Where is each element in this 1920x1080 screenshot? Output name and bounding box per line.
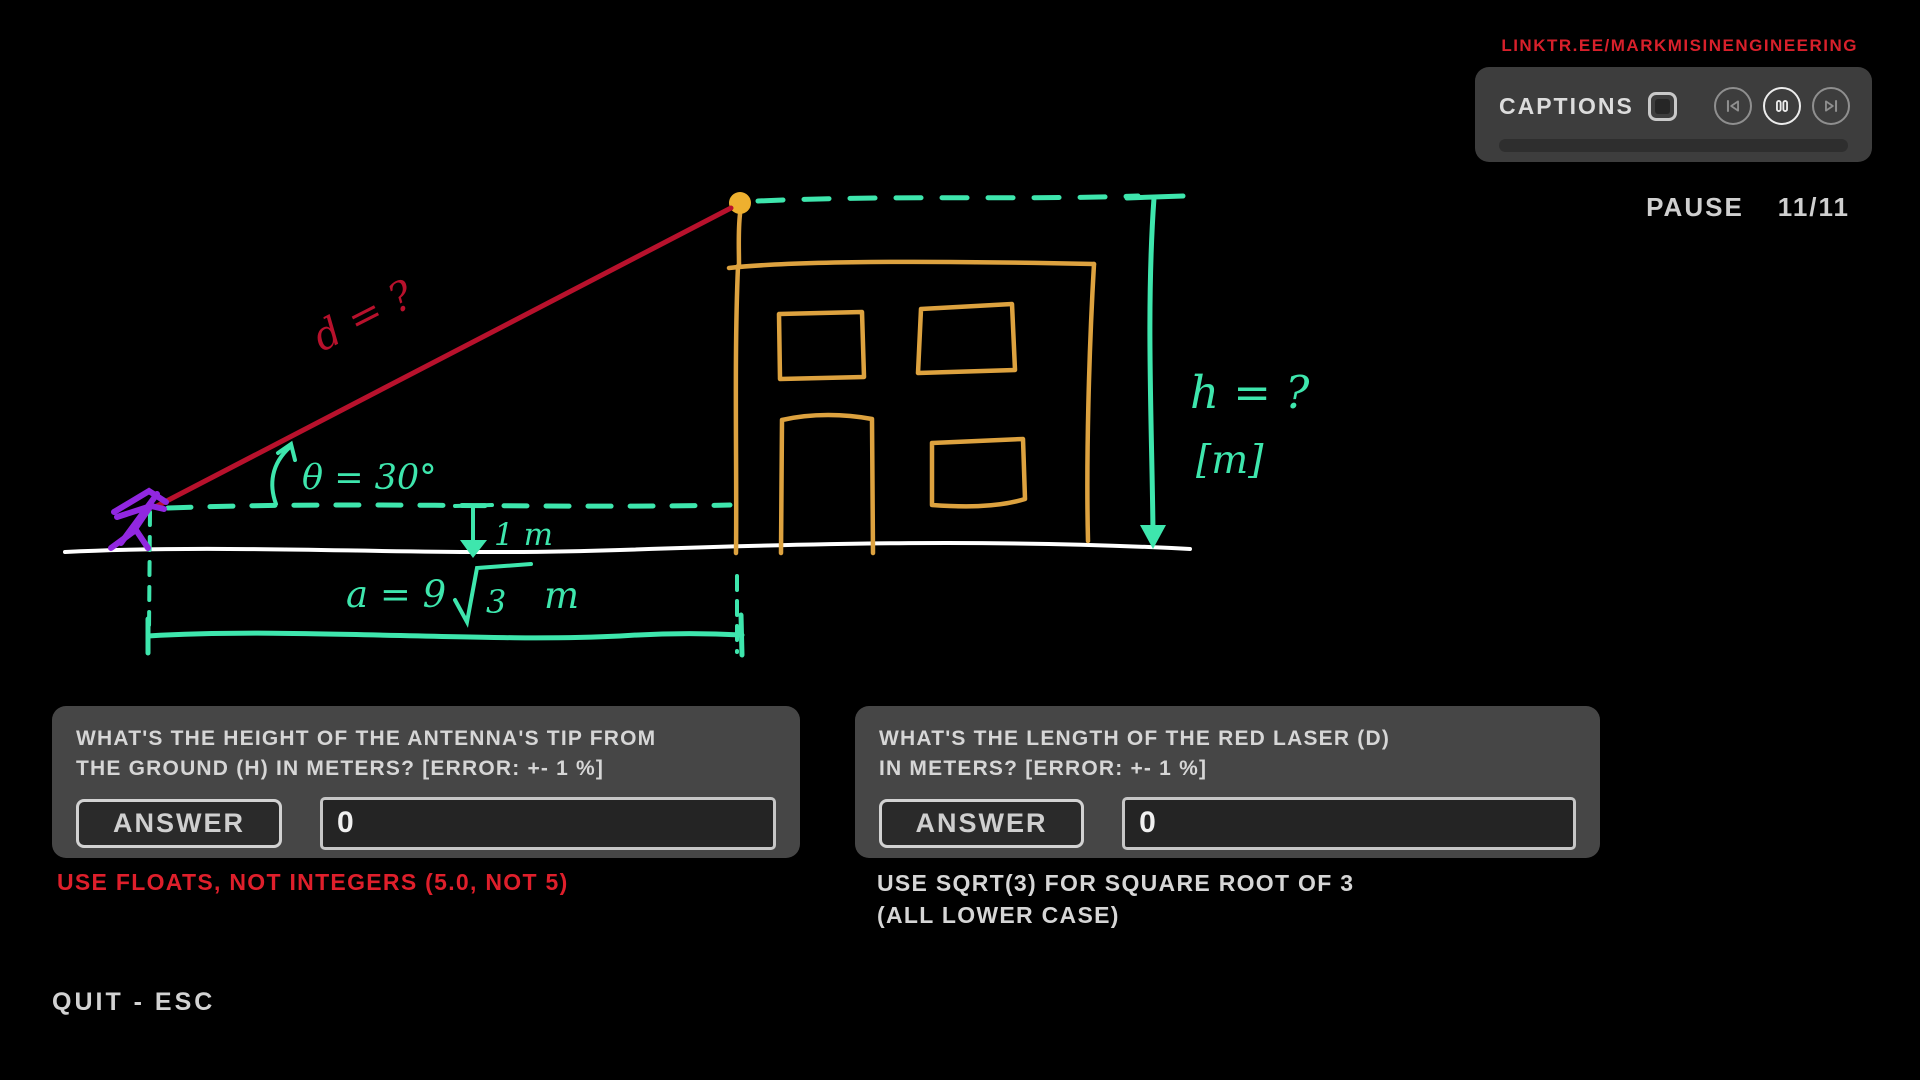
base-label-prefix: a = 9 xyxy=(346,573,446,616)
pause-icon xyxy=(1771,95,1793,117)
skip-back-icon xyxy=(1722,95,1744,117)
pause-status-label: PAUSE xyxy=(1646,192,1744,223)
base-measure-line xyxy=(148,633,742,638)
base-measure-right-end xyxy=(741,615,742,655)
building-right-wall xyxy=(1087,264,1094,541)
door xyxy=(781,415,873,553)
answer-button-laser[interactable]: ANSWER xyxy=(879,799,1084,848)
laser-line xyxy=(157,208,731,506)
floats-hint: USE FLOATS, NOT INTEGERS (5.0, NOT 5) xyxy=(57,869,569,896)
angle-label: θ = 30° xyxy=(302,458,437,498)
base-label-radicand: 3 xyxy=(486,583,506,621)
sqrt-hint-line1: USE SQRT(3) FOR SQUARE ROOT OF 3 xyxy=(877,867,1354,899)
building-roof xyxy=(729,262,1094,268)
quit-hint: QUIT - ESC xyxy=(52,988,215,1017)
question-laser-line2: IN METERS? [ERROR: +- 1 %] xyxy=(879,754,1576,784)
height-measure-line xyxy=(1150,198,1154,532)
offset-measure-arrowhead xyxy=(460,540,487,558)
captions-player-panel: CAPTIONS xyxy=(1475,67,1872,162)
captions-checkbox[interactable] xyxy=(1648,92,1677,121)
base-label-unit: m xyxy=(544,574,579,617)
question-laser-line1: WHAT'S THE LENGTH OF THE RED LASER (D) xyxy=(879,724,1576,754)
antenna-tip-dot xyxy=(729,192,751,214)
angle-arc xyxy=(272,447,290,504)
skip-forward-button[interactable] xyxy=(1812,87,1850,125)
question-height-line1: WHAT'S THE HEIGHT OF THE ANTENNA'S TIP F… xyxy=(76,724,776,754)
figure-leg-right xyxy=(136,530,148,548)
caption-progress-bar[interactable] xyxy=(1499,139,1848,152)
answer-input-height[interactable] xyxy=(320,797,776,850)
skip-back-button[interactable] xyxy=(1714,87,1752,125)
captions-checkbox-fill xyxy=(1655,99,1670,114)
eye-level-dashed-line xyxy=(168,505,730,508)
sqrt-hint-line2: (ALL LOWER CASE) xyxy=(877,899,1354,931)
captions-label: CAPTIONS xyxy=(1499,93,1634,120)
offset-label: 1 m xyxy=(494,517,553,553)
caption-index-counter: 11/11 xyxy=(1778,192,1850,223)
game-status: PAUSE 11/11 xyxy=(1646,192,1850,223)
building-left-wall xyxy=(736,266,738,553)
figure-base-dashed-tick xyxy=(149,512,150,630)
height-label: h = ? xyxy=(1190,366,1310,419)
roof-level-dashed-line xyxy=(758,196,1138,201)
ground-line xyxy=(65,543,1190,552)
skip-forward-icon xyxy=(1820,95,1842,117)
question-panel-laser: WHAT'S THE LENGTH OF THE RED LASER (D) I… xyxy=(855,706,1600,858)
window-lower-right xyxy=(932,439,1025,506)
sqrt-hint: USE SQRT(3) FOR SQUARE ROOT OF 3 (ALL LO… xyxy=(877,867,1354,931)
window-upper-right xyxy=(918,304,1015,373)
antenna-pole xyxy=(739,214,740,266)
creator-link: LINKTR.EE/MARKMISINENGINEERING xyxy=(1501,36,1858,56)
question-height-line2: THE GROUND (H) IN METERS? [ERROR: +- 1 %… xyxy=(76,754,776,784)
answer-input-laser[interactable] xyxy=(1122,797,1576,850)
pause-button[interactable] xyxy=(1763,87,1801,125)
height-unit-label: [m] xyxy=(1196,438,1264,483)
answer-button-height[interactable]: ANSWER xyxy=(76,799,282,848)
laser-label: d = ? xyxy=(306,272,422,361)
window-upper-left xyxy=(779,312,864,379)
question-panel-height: WHAT'S THE HEIGHT OF THE ANTENNA'S TIP F… xyxy=(52,706,800,858)
